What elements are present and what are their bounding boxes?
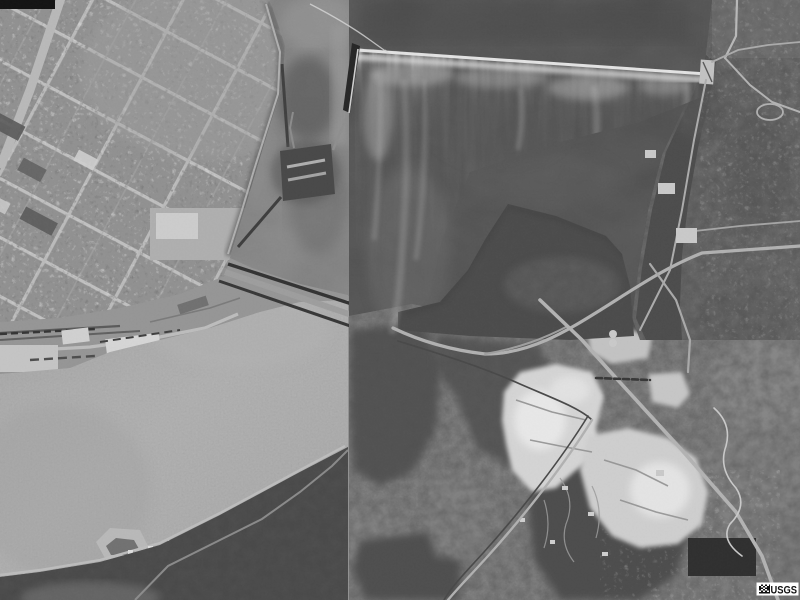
svg-text:USGS: USGS <box>771 585 798 597</box>
